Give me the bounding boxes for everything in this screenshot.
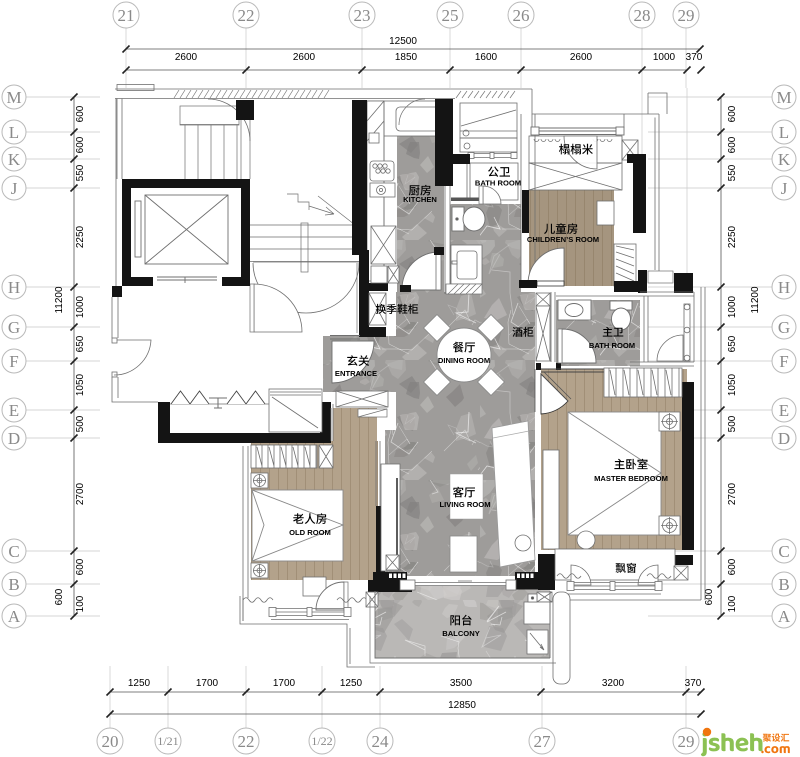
svg-text:2700: 2700 [727,482,738,505]
svg-text:100: 100 [727,595,738,612]
svg-text:600: 600 [727,558,738,575]
svg-text:E: E [779,401,789,420]
svg-text:650: 650 [727,335,738,352]
svg-text:600: 600 [54,588,65,605]
svg-text:11200: 11200 [750,286,761,314]
svg-text:DINING ROOM: DINING ROOM [438,356,490,365]
svg-text:LIVING ROOM: LIVING ROOM [439,500,490,509]
svg-text:21: 21 [118,6,135,25]
svg-text:1700: 1700 [196,678,219,689]
svg-text:1000: 1000 [727,295,738,318]
svg-text:12850: 12850 [448,700,476,711]
svg-text:28: 28 [634,6,651,25]
svg-text:D: D [778,429,790,448]
svg-text:100: 100 [75,595,86,612]
svg-text:25: 25 [442,6,459,25]
svg-text:2600: 2600 [293,52,316,63]
svg-text:2600: 2600 [570,52,593,63]
svg-text:22: 22 [238,6,255,25]
svg-text:600: 600 [727,105,738,122]
svg-text:K: K [778,150,791,169]
svg-text:1600: 1600 [475,52,498,63]
svg-text:29: 29 [678,6,695,25]
svg-text:C: C [778,542,789,561]
svg-text:600: 600 [75,105,86,122]
svg-text:1/21: 1/21 [157,734,178,748]
svg-text:2250: 2250 [727,225,738,248]
svg-text:20: 20 [102,732,119,751]
svg-text:ENTRANCE: ENTRANCE [335,369,377,378]
svg-text:550: 550 [727,164,738,181]
svg-text:2700: 2700 [75,482,86,505]
svg-text:650: 650 [75,335,86,352]
svg-text:KITCHEN: KITCHEN [403,195,437,204]
svg-text:BATH ROOM: BATH ROOM [475,179,521,188]
svg-text:1850: 1850 [395,52,418,63]
svg-text:1250: 1250 [340,678,363,689]
svg-text:23: 23 [354,6,371,25]
svg-text:370: 370 [685,678,702,689]
svg-text:26: 26 [513,6,530,25]
svg-text:E: E [9,401,19,420]
svg-text:M: M [776,88,791,107]
svg-text:L: L [779,123,789,142]
svg-text:F: F [779,352,788,371]
svg-text:500: 500 [727,415,738,432]
svg-text:J: J [781,179,788,198]
svg-text:BALCONY: BALCONY [442,629,480,638]
svg-text:A: A [778,607,791,626]
svg-text:B: B [8,575,19,594]
svg-text:F: F [9,352,18,371]
svg-text:M: M [6,88,21,107]
svg-text:600: 600 [75,136,86,153]
svg-text:1250: 1250 [128,678,151,689]
svg-text:CHILDREN’S ROOM: CHILDREN’S ROOM [527,235,599,244]
svg-text:24: 24 [372,732,390,751]
svg-text:G: G [778,318,790,337]
svg-text:600: 600 [727,136,738,153]
svg-text:1000: 1000 [653,52,676,63]
svg-text:H: H [778,278,790,297]
svg-text:BATH ROOM: BATH ROOM [589,341,635,350]
svg-text:27: 27 [534,732,552,751]
svg-text:A: A [8,607,21,626]
svg-text:L: L [9,123,19,142]
svg-text:11200: 11200 [54,286,65,314]
svg-text:1050: 1050 [75,373,86,396]
svg-text:2250: 2250 [75,225,86,248]
svg-text:2600: 2600 [175,52,198,63]
svg-text:G: G [8,318,20,337]
svg-text:H: H [8,278,20,297]
svg-text:550: 550 [75,164,86,181]
svg-text:OLD ROOM: OLD ROOM [289,528,331,537]
svg-text:600: 600 [704,588,715,605]
svg-text:3500: 3500 [450,678,473,689]
svg-text:370: 370 [686,52,703,63]
svg-text:22: 22 [238,732,255,751]
svg-text:1050: 1050 [727,373,738,396]
svg-text:29: 29 [678,732,695,751]
svg-text:600: 600 [75,558,86,575]
svg-text:J: J [11,179,18,198]
svg-text:3200: 3200 [602,678,625,689]
svg-text:B: B [778,575,789,594]
svg-text:500: 500 [75,415,86,432]
svg-text:D: D [8,429,20,448]
svg-text:1/22: 1/22 [311,734,332,748]
svg-text:12500: 12500 [389,36,417,47]
svg-text:1700: 1700 [273,678,296,689]
svg-text:C: C [8,542,19,561]
svg-text:K: K [8,150,21,169]
svg-text:MASTER BEDROOM: MASTER BEDROOM [594,474,668,483]
svg-text:1000: 1000 [75,295,86,318]
